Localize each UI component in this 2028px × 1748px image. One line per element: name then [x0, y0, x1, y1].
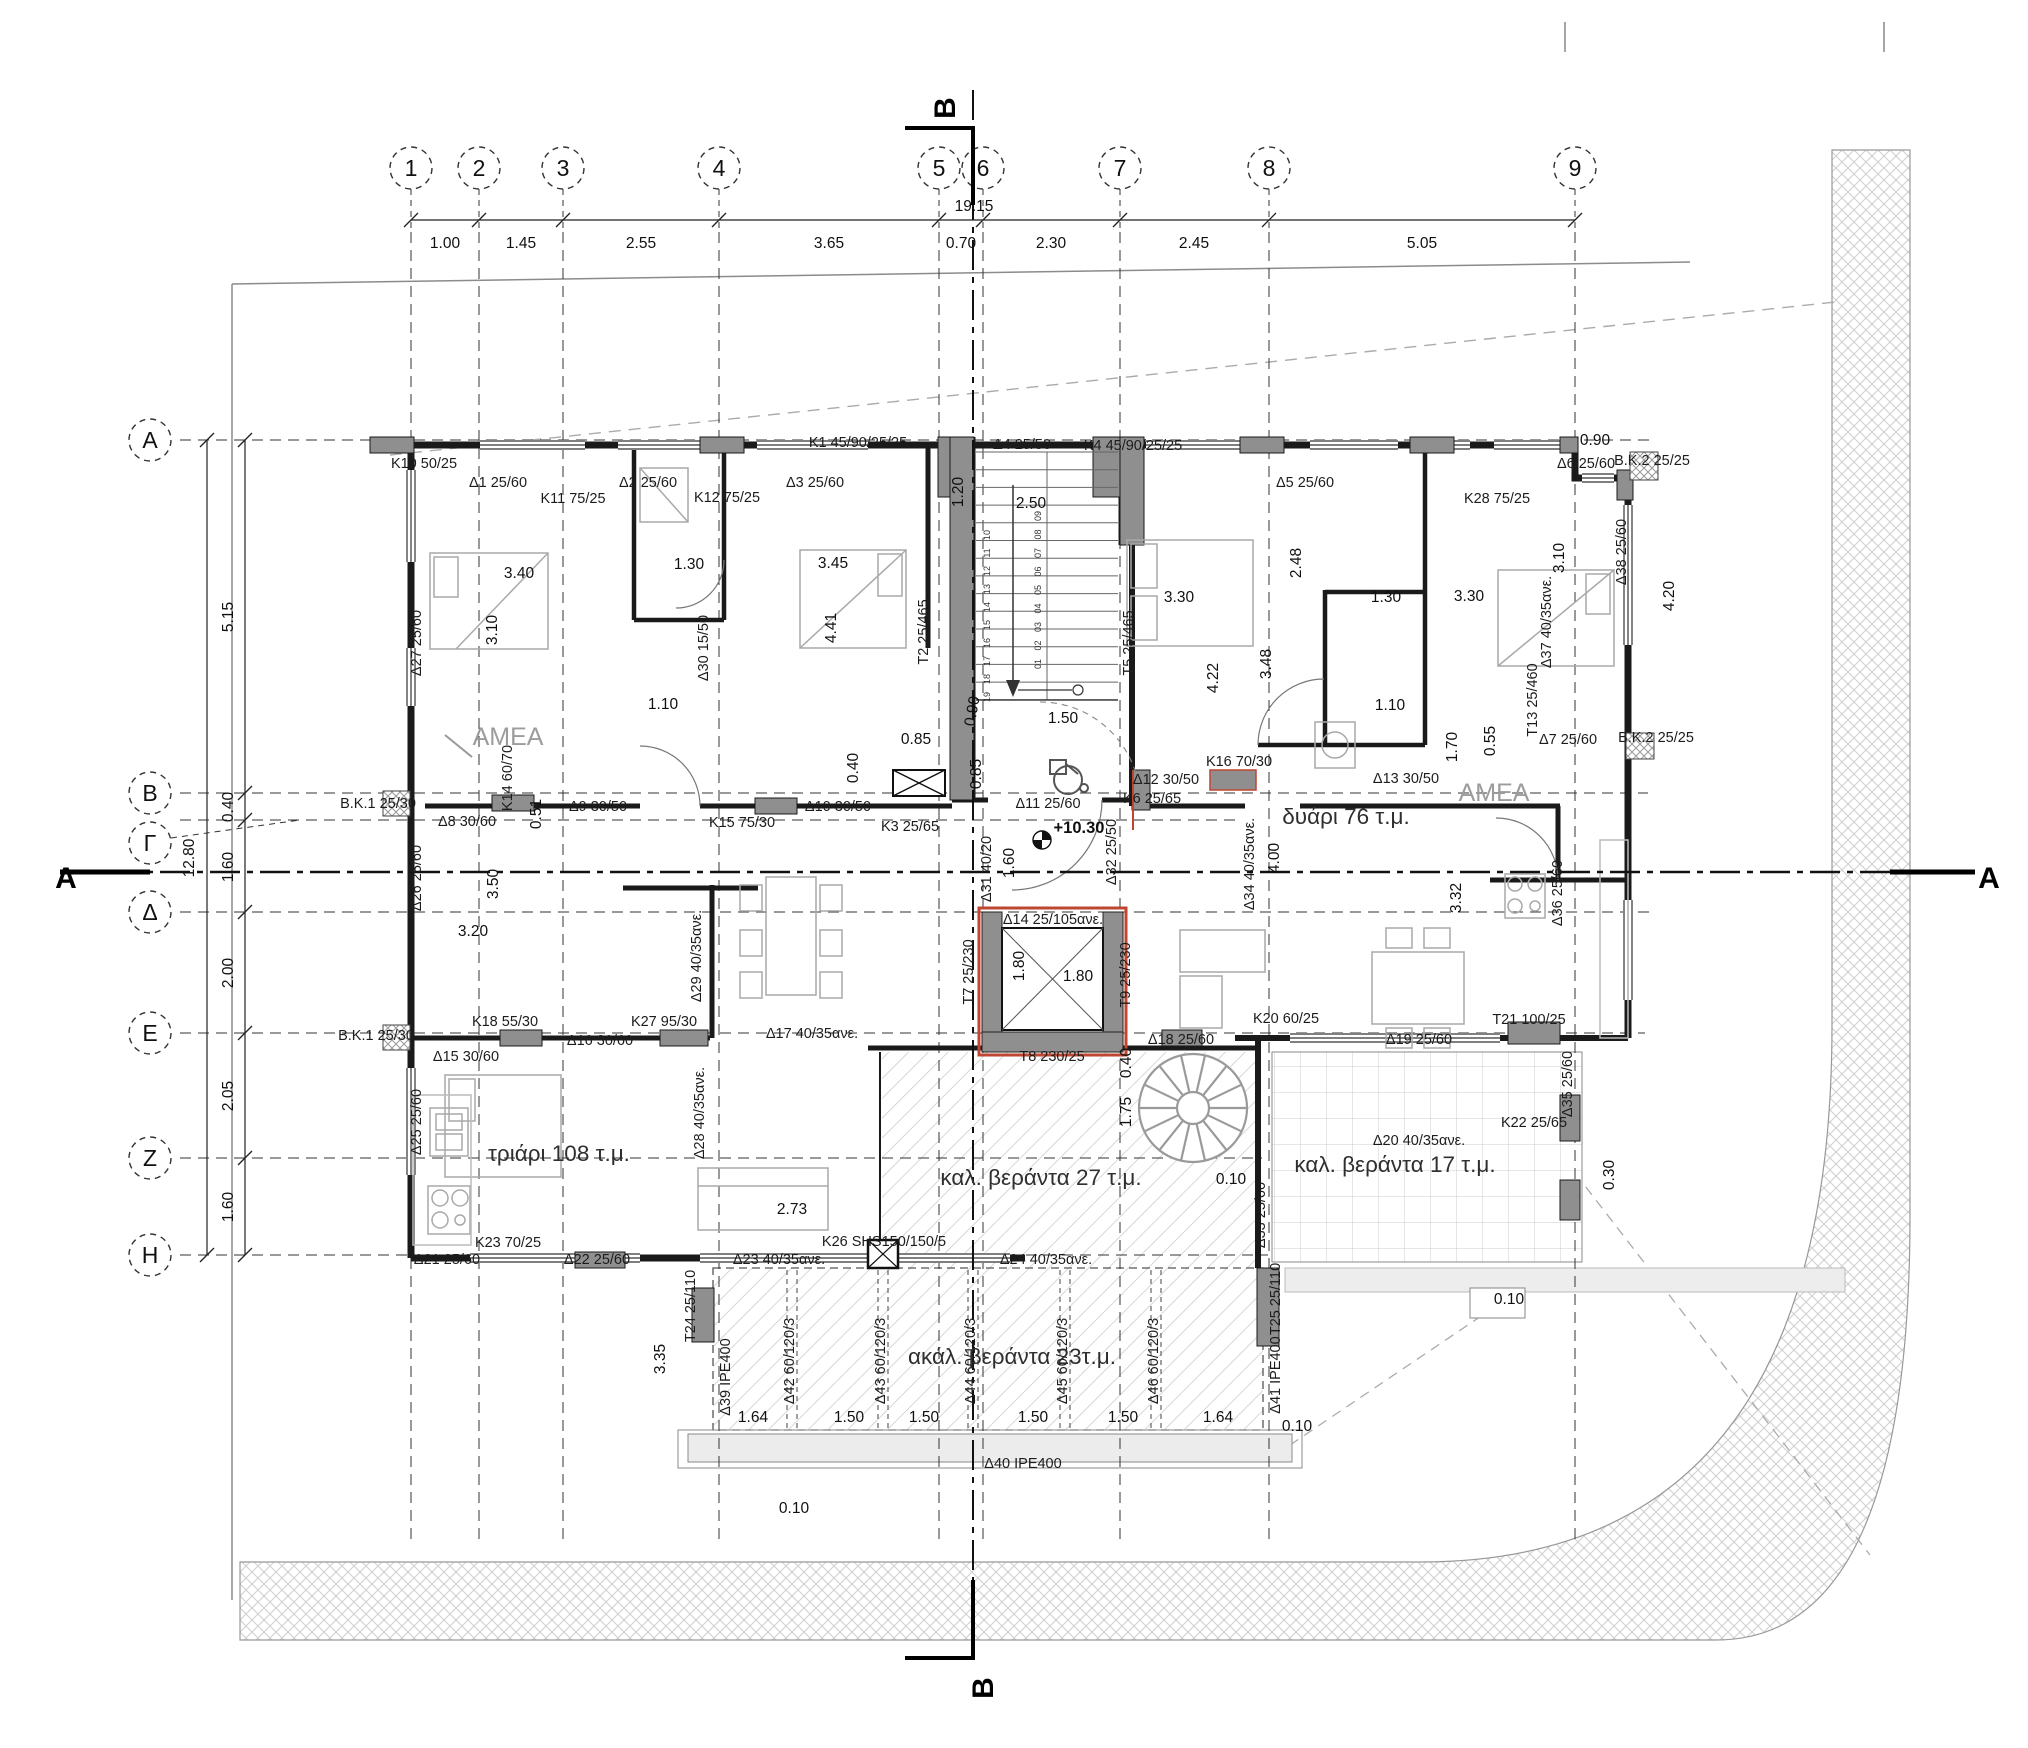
dimension-label: 3.65 — [814, 235, 844, 252]
member-label: Δ14 25/105ανε. — [1003, 912, 1103, 928]
member-label: K18 55/30 — [472, 1014, 538, 1030]
member-label: K6 25/65 — [1123, 791, 1181, 807]
member-label: Δ10 30/50 — [805, 799, 871, 815]
dimension-label: 1.80 — [1011, 951, 1028, 982]
dimension-label: 1.00 — [430, 235, 461, 252]
dimension-label: 3.50 — [485, 869, 502, 900]
spiral-stair — [1139, 1054, 1247, 1162]
section-letter: A — [1978, 862, 2000, 895]
dimension-label: 2.30 — [1036, 235, 1067, 252]
dining-table — [766, 877, 816, 995]
member-label: K10 50/25 — [391, 456, 457, 472]
member-label: Δ43 60/120/3 — [873, 1318, 889, 1404]
dimension-label: 1.80 — [1063, 968, 1094, 985]
dimension-label: 3.10 — [484, 615, 501, 646]
dimension-label: 0.85 — [901, 731, 931, 748]
setback-dashed-line — [390, 302, 1836, 455]
stair-tread-number: 01 — [1033, 659, 1043, 669]
member-label: T5 25/465 — [1121, 610, 1137, 675]
amea-slash-mark — [445, 735, 472, 757]
member-label: T7 25/230 — [961, 939, 977, 1004]
room-label: τριάρι 108 τ.μ. — [488, 1141, 630, 1166]
section-letter: B — [967, 1677, 1000, 1699]
member-label: Δ3 25/60 — [786, 475, 844, 491]
boundary-diagonal-dashed — [1290, 1300, 1505, 1445]
member-label: K23 70/25 — [475, 1235, 541, 1251]
member-label: Δ9 30/50 — [569, 799, 627, 815]
member-label: Δ41 IPE400 — [1268, 1336, 1284, 1413]
dimension-label: 1.50 — [1048, 710, 1079, 727]
dimension-label: 2.05 — [220, 1081, 237, 1111]
member-label: Δ32 25/50 — [1104, 819, 1120, 885]
level-elevation-label: +10.30 — [1054, 819, 1105, 837]
grid-bubble-label: A — [142, 427, 158, 453]
member-label: Δ46 60/120/3 — [1146, 1318, 1162, 1404]
section-letter: B — [929, 97, 962, 119]
dimension-label: 4.00 — [1266, 843, 1283, 874]
grid-bubble-label: 9 — [1569, 155, 1582, 181]
dimension-label: 0.10 — [1282, 1418, 1313, 1435]
section-letter: A — [55, 862, 77, 895]
dimension-label: 3.40 — [504, 565, 535, 582]
member-label: K16 70/30 — [1206, 754, 1272, 770]
dimension-label: 3.10 — [1551, 543, 1568, 574]
dimension-label: 1.60 — [220, 852, 237, 883]
dimension-label: 1.50 — [1108, 1409, 1139, 1426]
member-label: Δ12 30/50 — [1133, 772, 1199, 788]
member-label: Δ31 40/20 — [979, 836, 995, 902]
stair-tread-number: 14 — [982, 602, 992, 612]
room-label: καλ. βεράντα 27 τ.μ. — [940, 1165, 1141, 1190]
dimension-label: 1.75 — [1118, 1097, 1135, 1127]
member-label: Δ27 25/60 — [409, 610, 425, 676]
grid-bubble-label: Z — [143, 1145, 157, 1171]
grid-bubble-label: Δ — [142, 899, 157, 925]
stair-tread-number: 07 — [1033, 548, 1043, 558]
floor-plan-page: Floor plan – apartment level — [0, 0, 2028, 1748]
grid-bubble-label: 3 — [557, 155, 570, 181]
walkway-strip — [1285, 1268, 1845, 1292]
member-label: Δ29 40/35ανε. — [689, 910, 705, 1002]
member-label: K1 45/90/25/25 — [809, 435, 907, 451]
dimension-label: 3.30 — [1164, 589, 1195, 606]
member-label: Δ35 25/60 — [1560, 1051, 1576, 1117]
member-label: Δ36 25/60 — [1550, 860, 1566, 926]
member-label: Δ21 25/60 — [414, 1252, 480, 1268]
wheelchair-icon — [1050, 760, 1088, 794]
dimension-label: 1.10 — [648, 696, 679, 713]
member-label: K15 75/30 — [709, 815, 775, 831]
dimension-label: 19.15 — [955, 198, 994, 215]
member-label: Δ23 40/35ανε. — [733, 1252, 825, 1268]
plot-line-top — [232, 262, 1690, 284]
grid-bubble-label: B — [142, 780, 157, 806]
member-label: Δ22 25/60 — [564, 1252, 630, 1268]
dimension-label: 3.45 — [818, 555, 848, 572]
dimension-label: 0.30 — [1601, 1160, 1618, 1191]
member-label: Δ19 25/60 — [1386, 1032, 1452, 1048]
member-label: Δ8 30/60 — [438, 814, 496, 830]
member-label: Δ13 30/50 — [1373, 771, 1439, 787]
member-label: K12 75/25 — [694, 490, 760, 506]
member-label: Δ24 40/35ανε. — [1000, 1252, 1092, 1268]
dimension-label: 1.50 — [834, 1409, 865, 1426]
dimension-label: 2.50 — [1016, 495, 1047, 512]
member-label: K22 25/65 — [1501, 1115, 1567, 1131]
dimension-label: 4.20 — [1661, 581, 1678, 612]
member-label: Δ7 25/60 — [1539, 732, 1597, 748]
dimension-label: 0.90 — [1580, 432, 1611, 449]
member-label: T13 25/460 — [1525, 663, 1541, 736]
member-label: Δ38 25/60 — [1614, 519, 1630, 585]
dimension-label: 1.10 — [1375, 697, 1406, 714]
room-label: δυάρι 76 τ.μ. — [1282, 804, 1410, 829]
member-label: K28 75/25 — [1464, 491, 1530, 507]
dimension-label: 1.50 — [1018, 1409, 1049, 1426]
stair-tread-number: 13 — [982, 584, 992, 594]
member-label: K4 45/90/25/25 — [1084, 438, 1182, 454]
stair-tread-number: 15 — [982, 620, 992, 630]
member-label: Δ25 25/60 — [409, 1089, 425, 1155]
stair-tread-number: 11 — [982, 548, 992, 557]
member-label: B.K.1 25/30 — [338, 1028, 414, 1044]
dimension-label: 1.20 — [950, 477, 967, 508]
member-label: Δ5 25/60 — [1276, 475, 1334, 491]
dimension-label: 3.48 — [1258, 649, 1275, 679]
dimension-label: 1.60 — [220, 1192, 237, 1223]
stair-tread-number: 02 — [1033, 640, 1043, 650]
floor-plan-drawing: 123456789ABΓΔEZH — [0, 0, 2028, 1748]
member-label: T25 25/110 — [1268, 1263, 1284, 1335]
dimension-label: 5.15 — [220, 602, 237, 632]
grid-bubble-label: 8 — [1263, 155, 1276, 181]
stair-tread-number: 04 — [1033, 603, 1043, 613]
member-label: T2 25/465 — [916, 599, 932, 664]
level-marker — [1033, 831, 1051, 849]
grid-bubble-label: Γ — [144, 830, 157, 856]
member-label: Δ16 30/60 — [567, 1033, 633, 1049]
dimension-label: 0.40 — [845, 753, 862, 784]
stair-tread-number: 05 — [1033, 585, 1043, 595]
dimension-label: 1.64 — [1203, 1409, 1234, 1426]
dimension-label: 1.30 — [1371, 589, 1402, 606]
member-label: Δ28 40/35ανε. — [692, 1067, 708, 1159]
dimension-label: 0.85 — [968, 759, 985, 789]
room-label: ακάλ. βεράντα 23τ.μ. — [908, 1344, 1116, 1369]
dimension-label: 4.41 — [823, 613, 840, 643]
member-label: Δ26 25/60 — [409, 845, 425, 911]
dimension-label: 0.55 — [1482, 726, 1499, 756]
grid-bubble-label: 5 — [933, 155, 946, 181]
dimension-label: 1.70 — [1444, 732, 1461, 763]
stair-tread-number: 08 — [1033, 529, 1043, 539]
member-label: Δ34 40/35ανε. — [1242, 818, 1258, 910]
member-label: Δ2 25/60 — [619, 475, 677, 491]
grid-bubble-label: H — [142, 1242, 159, 1268]
member-label: Δ6 25/60 — [1557, 456, 1615, 472]
dimension-label: 2.00 — [220, 958, 237, 989]
member-label: B.K.1 25/30 — [340, 796, 416, 812]
dimension-label: 1.60 — [1001, 848, 1018, 879]
stair-tread-number: 17 — [982, 656, 992, 666]
dimension-label: 0.40 — [1118, 1048, 1135, 1079]
dimension-label: 0.10 — [1216, 1171, 1247, 1188]
member-label: Δ11 25/60 — [1015, 796, 1080, 812]
member-label: K3 25/65 — [881, 819, 939, 835]
dimension-label: 0.10 — [779, 1500, 810, 1517]
member-label: Δ42 60/120/3 — [782, 1318, 798, 1404]
member-label: Δ1 25/60 — [469, 475, 527, 491]
member-label: K26 SHS150/150/5 — [822, 1234, 946, 1250]
member-label: K20 60/25 — [1253, 1011, 1319, 1027]
stair-tread-number: 19 — [982, 692, 992, 702]
dimension-label: 2.55 — [626, 235, 656, 252]
member-label: Δ30 15/50 — [696, 615, 712, 681]
member-label: Δ40 IPE400 — [984, 1456, 1061, 1472]
stair-tread-number: 12 — [982, 566, 992, 576]
dimension-label: 1.45 — [506, 235, 536, 252]
grid-bubble-label: 4 — [713, 155, 726, 181]
member-label: T9 25/230 — [1118, 942, 1134, 1007]
member-label: Δ37 40/35ανε. — [1539, 576, 1555, 668]
member-label: T8 230/25 — [1019, 1049, 1084, 1065]
member-label: T21 100/25 — [1492, 1012, 1565, 1028]
grid-bubble-label: E — [142, 1020, 157, 1046]
dimension-label: 0.40 — [220, 792, 237, 823]
member-label: Δ17 40/35ανε. — [766, 1026, 858, 1042]
dining-table — [1372, 952, 1464, 1024]
dimension-label: 3.30 — [1454, 588, 1485, 605]
dimension-label: 0.70 — [946, 235, 977, 252]
member-label: Δ18 25/60 — [1148, 1032, 1214, 1048]
grid-bubble-label: 1 — [405, 155, 418, 181]
member-label: Δ4 25/50 — [993, 437, 1051, 453]
grid-bubble-label: 7 — [1114, 155, 1127, 181]
staircase — [976, 452, 1140, 802]
dimension-label: 3.20 — [458, 923, 489, 940]
dimension-label: 0.10 — [1494, 1291, 1525, 1308]
member-label: Δ15 30/60 — [433, 1049, 499, 1065]
sofa — [698, 1168, 828, 1230]
dimension-label: 0.51 — [528, 799, 545, 829]
dimension-label: 2.73 — [777, 1201, 807, 1218]
dimension-label: 1.30 — [674, 556, 705, 573]
member-label: Δ20 40/35ανε. — [1373, 1133, 1465, 1149]
member-label: K27 95/30 — [631, 1014, 697, 1030]
stair-tread-number: 18 — [982, 674, 992, 684]
member-label: B.K.2 25/25 — [1618, 730, 1694, 746]
room-label: καλ. βεράντα 17 τ.μ. — [1294, 1152, 1495, 1177]
grid-bubble-label: 2 — [473, 155, 486, 181]
dimension-label: 2.45 — [1179, 235, 1209, 252]
member-label: Δ39 IPE400 — [718, 1338, 734, 1415]
stair-tread-number: 09 — [1033, 511, 1043, 521]
member-label: Δ33 25/60 — [1253, 1182, 1269, 1248]
dimension-label: 2.48 — [1288, 548, 1305, 578]
dimension-label: 5.05 — [1407, 235, 1437, 252]
grid-bubble-label: 6 — [977, 155, 990, 181]
stair-tread-number: 03 — [1033, 622, 1043, 632]
sofa — [1180, 930, 1265, 972]
dimension-label: 12.80 — [181, 838, 198, 877]
dimension-label: 4.22 — [1205, 663, 1222, 693]
member-label: T24 25/110 — [683, 1270, 699, 1342]
amea-note-label: ΑΜΕΑ — [1459, 779, 1530, 807]
door-swings — [640, 560, 1558, 890]
dimension-label: 1.50 — [909, 1409, 940, 1426]
dimension-label: 1.64 — [738, 1409, 769, 1426]
member-label: K11 75/25 — [540, 491, 605, 507]
dimension-label: 3.35 — [652, 1344, 669, 1374]
stair-tread-number: 10 — [982, 530, 992, 540]
amea-note-label: ΑΜΕΑ — [473, 723, 544, 751]
member-label: K14 60/70 — [500, 745, 516, 811]
stair-tread-number: 16 — [982, 638, 992, 648]
stair-tread-number: 06 — [1033, 566, 1043, 576]
dimension-label: 3.32 — [1448, 883, 1465, 913]
member-label: B.K.2 25/25 — [1614, 453, 1690, 469]
